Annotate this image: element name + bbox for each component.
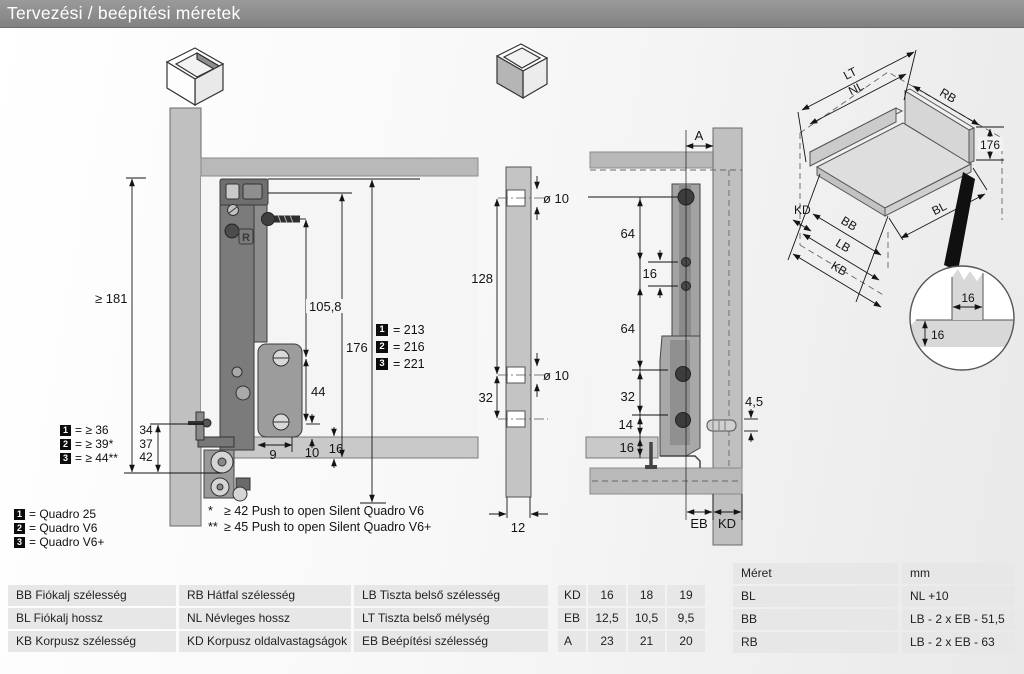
label-kd-iso: KD xyxy=(794,203,811,217)
footnotes: * ≥ 42 Push to open Silent Quadro V6 ** … xyxy=(208,503,431,535)
detail-dim-h: 16 xyxy=(961,291,975,305)
definitions-table: BB Fiókalj szélesség RB Hátfal szélesség… xyxy=(8,585,548,652)
table-cell: BB Fiókalj szélesség xyxy=(8,585,176,606)
detail-dim-v: 16 xyxy=(931,328,945,342)
diagram-front-view: A 64 16 64 32 14 16 4,5 EB KD xyxy=(586,128,763,545)
stack-37: 37 xyxy=(133,438,159,452)
isometric-drawer: LT NL RB 176 KD BB LB KB BL 16 xyxy=(788,50,1014,370)
table-cell: NL +10 xyxy=(902,586,1015,607)
dim-32b: 32 xyxy=(621,389,635,404)
table-cell: LB Tiszta belső szélesség xyxy=(354,585,548,606)
variant-2-value: = ≥ 39* xyxy=(75,437,113,451)
table-cell: NL Névleges hossz xyxy=(179,608,351,629)
legend-row: 1 = 213 xyxy=(376,321,425,338)
variant-1-value: = ≥ 36 xyxy=(75,423,109,437)
product-3-badge: 3 xyxy=(14,537,25,548)
table-cell: 20 xyxy=(667,631,705,652)
dim-min-height: ≥ 181 xyxy=(95,291,127,306)
label-kb: KB xyxy=(829,258,850,278)
footnote-row: ** ≥ 45 Push to open Silent Quadro V6+ xyxy=(208,519,431,535)
dim-64-top: 64 xyxy=(621,226,635,241)
dim-16-base: 16 xyxy=(620,440,634,455)
dim-32: 32 xyxy=(479,390,493,405)
variant-3-badge: 3 xyxy=(376,358,388,370)
values-table: KD 16 18 19 EB 12,5 10,5 9,5 A 23 21 20 xyxy=(558,585,705,652)
diagram-back-panel: ø 10 ø 10 128 32 12 xyxy=(471,167,569,535)
product-1-badge: 1 xyxy=(14,509,25,520)
table-cell: KB Korpusz szélesség xyxy=(8,631,176,652)
dim-16: 16 xyxy=(329,441,343,456)
detail-pointer xyxy=(944,172,975,271)
dim-4-5: 4,5 xyxy=(745,394,763,409)
dim-14: 14 xyxy=(619,417,633,432)
table-cell: KD Korpusz oldalvastagságok xyxy=(179,631,351,652)
dim-16-mid: 16 xyxy=(643,266,657,281)
label-eb: EB xyxy=(690,516,707,531)
variant-3-badge: 3 xyxy=(60,453,71,464)
drawer-closed-icon xyxy=(497,44,547,98)
footnote-text: ≥ 45 Push to open Silent Quadro V6+ xyxy=(224,520,431,534)
page-title: Tervezési / beépítési méretek xyxy=(0,0,1024,27)
table-cell: 16 xyxy=(588,585,626,606)
legend-row: 3 = ≥ 44** xyxy=(60,451,118,465)
footnote-marker: * xyxy=(208,504,224,518)
column-header: mm xyxy=(902,563,1015,584)
table-cell: 23 xyxy=(588,631,626,652)
clearance-stack: 34 37 42 xyxy=(133,424,159,465)
dim-dia-mid: ø 10 xyxy=(543,368,569,383)
dim-a: A xyxy=(695,128,704,143)
dim-10: 10 xyxy=(305,445,319,460)
table-cell: 21 xyxy=(628,631,665,652)
variant-2-badge: 2 xyxy=(60,439,71,450)
product-3-label: = Quadro V6+ xyxy=(29,535,104,549)
catalog-page: Tervezési / beépítési méretek xyxy=(0,0,1024,674)
variant-2-value: = 216 xyxy=(393,340,425,354)
formulas-table: Méret mm BL NL +10 BB LB - 2 x EB - 51,5… xyxy=(733,563,1015,653)
row-label: KD xyxy=(558,585,586,606)
drawer-open-icon xyxy=(167,48,223,105)
variant-2-badge: 2 xyxy=(376,341,388,353)
title-bar: Tervezési / beépítési méretek xyxy=(0,0,1024,28)
table-cell: 12,5 xyxy=(588,608,626,629)
label-kd: KD xyxy=(718,516,736,531)
product-2-label: = Quadro V6 xyxy=(29,521,97,535)
label-176: 176 xyxy=(980,138,1000,152)
table-cell: EB Beépítési szélesség xyxy=(354,631,548,652)
row-label: RB xyxy=(733,632,898,653)
dim-9: 9 xyxy=(269,447,276,462)
legend-row: 3 = 221 xyxy=(376,355,425,372)
table-cell: LB - 2 x EB - 63 xyxy=(902,632,1015,653)
footnote-text: ≥ 42 Push to open Silent Quadro V6 xyxy=(224,504,424,518)
label-lb: LB xyxy=(833,236,853,256)
row-label: A xyxy=(558,631,586,652)
table-cell: RB Hátfal szélesség xyxy=(179,585,351,606)
variant-1-value: = 213 xyxy=(393,323,425,337)
footnote-row: * ≥ 42 Push to open Silent Quadro V6 xyxy=(208,503,431,519)
dim-12: 12 xyxy=(511,520,525,535)
variant-3-value: = ≥ 44** xyxy=(75,451,118,465)
variant-3-value: = 221 xyxy=(393,357,425,371)
product-2-badge: 2 xyxy=(14,523,25,534)
row-label: BL xyxy=(733,586,898,607)
column-header: Méret xyxy=(733,563,898,584)
table-cell: 10,5 xyxy=(628,608,665,629)
dim-176: 176 xyxy=(346,340,368,355)
legend-row: 2 = ≥ 39* xyxy=(60,437,118,451)
legend-row: 1 = ≥ 36 xyxy=(60,423,118,437)
row-label: BB xyxy=(733,609,898,630)
dim-64-bottom: 64 xyxy=(621,321,635,336)
stack-34: 34 xyxy=(133,424,159,438)
dim-44: 44 xyxy=(311,384,325,399)
bottom-clearance-legend: 1 = ≥ 36 2 = ≥ 39* 3 = ≥ 44** xyxy=(60,423,118,465)
legend-row: 2 = 216 xyxy=(376,338,425,355)
table-cell: 18 xyxy=(628,585,665,606)
label-bb: BB xyxy=(839,213,860,233)
dim-dia-top: ø 10 xyxy=(543,191,569,206)
total-height-legend: 1 = 213 2 = 216 3 = 221 xyxy=(376,321,425,372)
legend-row: 2 = Quadro V6 xyxy=(14,521,104,535)
dim-128: 128 xyxy=(471,271,493,286)
product-1-label: = Quadro 25 xyxy=(29,507,96,521)
product-legend: 1 = Quadro 25 2 = Quadro V6 3 = Quadro V… xyxy=(14,507,104,549)
runner-marking: R xyxy=(242,232,250,244)
table-cell: LT Tiszta belső mélység xyxy=(354,608,548,629)
legend-row: 3 = Quadro V6+ xyxy=(14,535,104,549)
stack-42: 42 xyxy=(133,451,159,465)
label-bl: BL xyxy=(929,199,949,218)
table-cell: LB - 2 x EB - 51,5 xyxy=(902,609,1015,630)
variant-1-badge: 1 xyxy=(376,324,388,336)
table-cell: 19 xyxy=(667,585,705,606)
table-cell: 9,5 xyxy=(667,608,705,629)
variant-1-badge: 1 xyxy=(60,425,71,436)
table-cell: BL Fiókalj hossz xyxy=(8,608,176,629)
footnote-marker: ** xyxy=(208,520,224,534)
row-label: EB xyxy=(558,608,586,629)
dim-105-8: 105,8 xyxy=(309,299,342,314)
legend-row: 1 = Quadro 25 xyxy=(14,507,104,521)
